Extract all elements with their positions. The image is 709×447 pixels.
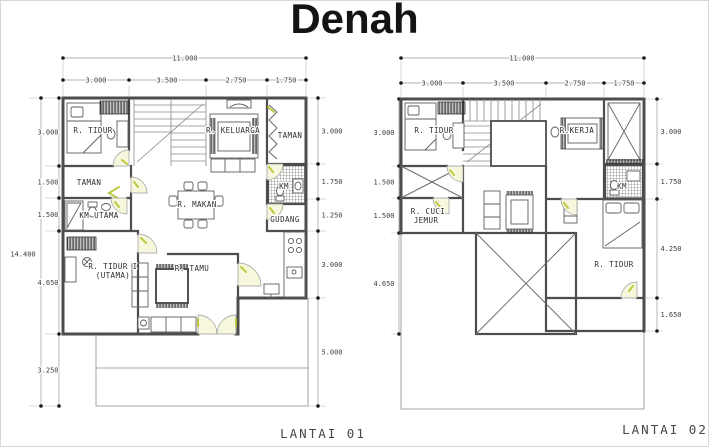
wardrobe3-icon (438, 102, 465, 114)
dim-left-0: 3.000 (37, 129, 58, 137)
plan-lantai-01: 11.000 3.000 3.500 2.750 1.750 14.400 3.… (10, 55, 366, 442)
dim-left-4: 3.250 (37, 367, 58, 375)
dim-top-2: 2.750 (225, 77, 246, 85)
room-master-2: (UTAMA) (96, 271, 130, 280)
wardrobe2-icon (67, 237, 96, 250)
dim2-left-1: 1.500 (373, 179, 394, 187)
void-x-center (476, 233, 576, 334)
stairs2-icon (463, 99, 546, 166)
dim-left-3: 4.650 (37, 279, 58, 287)
plan1-caption: LANTAI 01 (280, 426, 366, 441)
wardrobe-icon (100, 101, 129, 114)
room-main-bath: KM UTAMA (79, 211, 118, 220)
dim2-top-2: 2.750 (564, 80, 585, 88)
room2-bath: KM (617, 182, 627, 191)
dim-top-3: 1.750 (275, 77, 296, 85)
dim-right-3: 3.000 (321, 261, 342, 269)
dim-left-1: 1.500 (37, 179, 58, 187)
dim2-right-3: 1.650 (660, 311, 681, 319)
room-storage: GUDANG (270, 215, 300, 224)
dim-right-2: 1.250 (321, 212, 342, 220)
dim2-top-0: 3.000 (421, 80, 442, 88)
dim-right-0: 3.000 (321, 128, 342, 136)
room2-laundry-2: JEMUR (414, 216, 439, 225)
room-garden-right: TAMAN (278, 131, 303, 140)
cabinet-icon (484, 191, 500, 229)
living-room-set-icon (132, 263, 196, 332)
plan-lantai-02: 11.000 3.000 3.500 2.750 1.750 3.000 1.5… (373, 55, 707, 438)
plan1-doors (111, 150, 283, 334)
dim2-top-1: 3.500 (493, 80, 514, 88)
dim-top-0: 3.000 (85, 77, 106, 85)
dim2-left-0: 3.000 (373, 129, 394, 137)
dim2-top-3: 1.750 (613, 80, 634, 88)
dim-left-2: 1.500 (37, 211, 58, 219)
room-master-1: R. TIDUR I (88, 262, 137, 271)
dim2-right-2: 4.250 (660, 245, 681, 253)
dim-total-height: 14.400 (10, 251, 35, 259)
dim-right-4: 5.000 (321, 349, 342, 357)
room2-laundry-1: R. CUCI (411, 207, 445, 216)
plan1-terrace-outline (96, 298, 308, 406)
room-garden-left: TAMAN (77, 178, 102, 187)
monitor-icon (264, 284, 279, 297)
stairs-icon (134, 99, 206, 166)
room-family: R. KELUARGA (206, 126, 260, 135)
plan2-caption: LANTAI 02 (622, 422, 708, 437)
washer-icon (506, 191, 533, 233)
sofa-icon (210, 114, 258, 172)
plant-icon (268, 105, 277, 159)
dim-right-1: 1.750 (321, 178, 342, 186)
floor-plan-page: Denah (0, 0, 709, 447)
room-living: R. TAMU (175, 264, 209, 273)
dim2-total-width: 11.000 (509, 55, 534, 63)
dim2-left-2: 1.500 (373, 212, 394, 220)
dim2-right-1: 1.750 (660, 178, 681, 186)
dim2-left-3: 4.650 (373, 280, 394, 288)
room-dining: R. MAKAN (177, 200, 216, 209)
kitchen-counter-icon (284, 232, 305, 297)
dim-total-width: 11.000 (172, 55, 197, 63)
room2-bedroom: R. TIDUR (414, 126, 453, 135)
tv-icon (227, 100, 251, 108)
void-x-top-right (606, 103, 643, 164)
dim2-right-0: 3.000 (660, 128, 681, 136)
room-bath: KM (279, 182, 289, 191)
room2-work: R.KERJA (560, 126, 594, 135)
floor-plan-drawing: 11.000 3.000 3.500 2.750 1.750 14.400 3.… (1, 1, 709, 447)
bed3-icon (603, 200, 642, 248)
room2-bedroom-right: R. TIDUR (594, 260, 633, 269)
room-bedroom: R. TIDUR (73, 126, 112, 135)
dim-top-1: 3.500 (156, 77, 177, 85)
